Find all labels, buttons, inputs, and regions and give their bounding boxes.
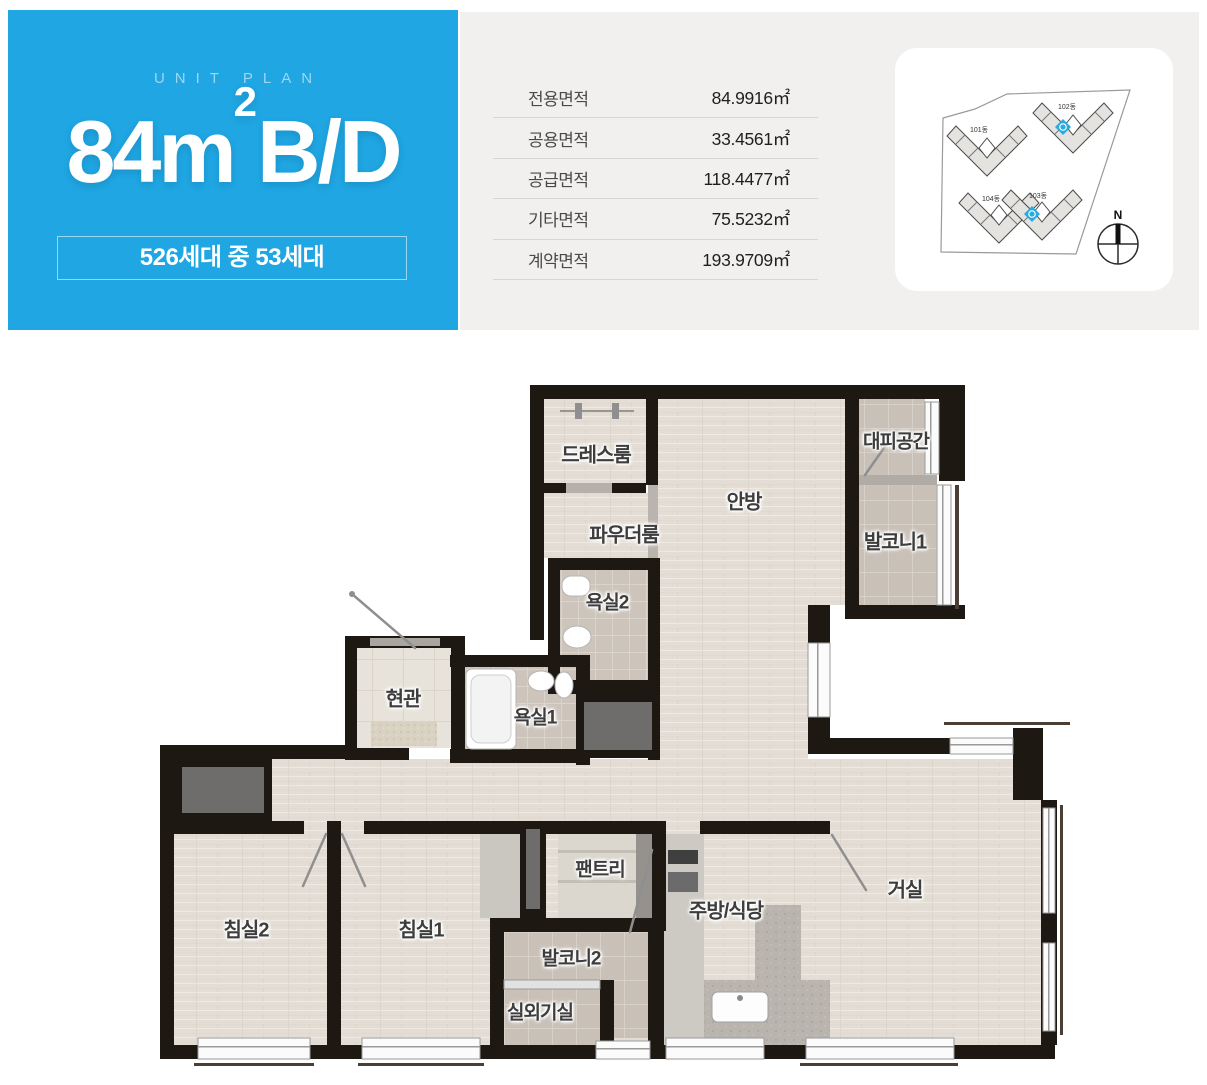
svg-text:101동: 101동 bbox=[970, 126, 989, 134]
building-102: 102동 bbox=[1033, 103, 1113, 153]
unit-plan-panel: UNIT PLAN 84m2B/D 526세대 중 53세대 bbox=[8, 10, 458, 330]
site-plan-card: 101동 102동 104동 103동 bbox=[895, 48, 1173, 291]
compass-icon: N bbox=[1098, 208, 1138, 264]
room-label-refuge: 대피공간 bbox=[863, 427, 929, 454]
room-label-bath1: 욕실1 bbox=[514, 703, 557, 730]
table-row: 계약면적 193.9709㎡ bbox=[493, 240, 818, 280]
household-count-badge: 526세대 중 53세대 bbox=[57, 236, 407, 280]
room-label-dressroom: 드레스룸 bbox=[561, 439, 631, 468]
area-value: 33.4561㎡ bbox=[712, 126, 790, 151]
svg-text:104동: 104동 bbox=[982, 195, 1001, 203]
room-label-balcony2: 발코니2 bbox=[541, 944, 600, 971]
unit-name: 84m2B/D bbox=[8, 108, 458, 196]
svg-text:N: N bbox=[1114, 208, 1123, 222]
room-label-powderroom: 파우더룸 bbox=[589, 519, 659, 548]
area-label: 전용면적 bbox=[528, 85, 589, 110]
area-table: 전용면적 84.9916㎡ 공용면적 33.4561㎡ 공급면적 118.447… bbox=[493, 78, 818, 280]
area-value: 75.5232㎡ bbox=[712, 206, 790, 231]
room-label-entrance: 현관 bbox=[386, 683, 421, 712]
table-row: 공급면적 118.4477㎡ bbox=[493, 159, 818, 199]
room-label-bedroom2: 침실2 bbox=[224, 914, 269, 943]
svg-text:102동: 102동 bbox=[1058, 103, 1077, 111]
area-value: 84.9916㎡ bbox=[712, 85, 790, 110]
room-label-pantry: 팬트리 bbox=[575, 855, 624, 882]
svg-text:103동: 103동 bbox=[1029, 192, 1048, 200]
room-label-living: 거실 bbox=[888, 874, 923, 903]
room-label-bath2: 욕실2 bbox=[586, 588, 629, 615]
table-row: 기타면적 75.5232㎡ bbox=[493, 199, 818, 239]
area-label: 공급면적 bbox=[528, 166, 589, 191]
building-101: 101동 bbox=[947, 126, 1027, 176]
site-plan-map: 101동 102동 104동 103동 bbox=[895, 48, 1173, 291]
table-row: 전용면적 84.9916㎡ bbox=[493, 78, 818, 118]
area-value: 193.9709㎡ bbox=[702, 247, 790, 272]
table-row: 공용면적 33.4561㎡ bbox=[493, 118, 818, 158]
room-label-balcony1: 발코니1 bbox=[864, 526, 926, 555]
room-label-masterbed: 안방 bbox=[727, 486, 762, 515]
eyebrow-title: UNIT PLAN bbox=[8, 70, 458, 87]
area-label: 기타면적 bbox=[528, 206, 589, 231]
floor-plan bbox=[0, 380, 1207, 1085]
room-label-bedroom1: 침실1 bbox=[399, 914, 444, 943]
area-value: 118.4477㎡ bbox=[704, 166, 791, 191]
area-label: 계약면적 bbox=[528, 247, 589, 272]
area-label: 공용면적 bbox=[528, 126, 589, 151]
floor-plan-drawing bbox=[0, 380, 1207, 1085]
room-label-acroom: 실외기실 bbox=[507, 998, 573, 1025]
room-label-kitchen: 주방/식당 bbox=[689, 895, 763, 924]
